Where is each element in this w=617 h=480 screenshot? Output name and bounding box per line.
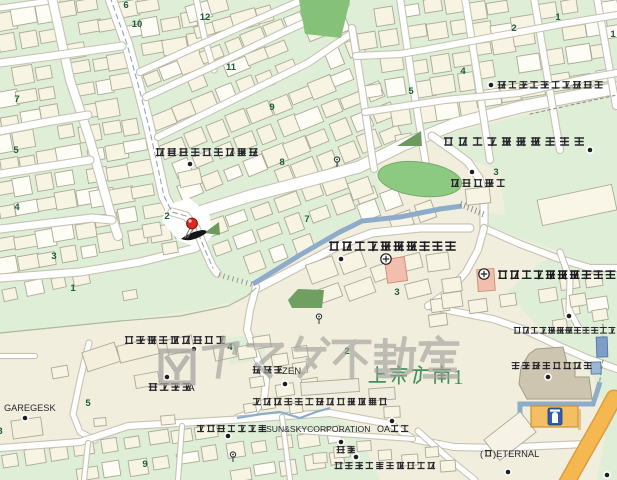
svg-text:GAREGESK: GAREGESK bbox=[4, 403, 56, 413]
svg-text:)ETERNAL: )ETERNAL bbox=[493, 448, 539, 459]
svg-text:4: 4 bbox=[14, 202, 20, 213]
svg-text:1: 1 bbox=[70, 283, 76, 294]
svg-text:3: 3 bbox=[0, 426, 3, 437]
svg-text:5: 5 bbox=[13, 145, 19, 156]
svg-text:3: 3 bbox=[51, 251, 56, 262]
svg-text:OA: OA bbox=[377, 424, 390, 434]
svg-text:4: 4 bbox=[460, 66, 466, 77]
svg-text:6: 6 bbox=[123, 0, 128, 11]
svg-text:1: 1 bbox=[610, 29, 616, 40]
svg-text:10: 10 bbox=[132, 19, 143, 30]
svg-text:7: 7 bbox=[14, 94, 19, 105]
svg-text:11: 11 bbox=[226, 62, 237, 73]
svg-text:3: 3 bbox=[493, 167, 498, 178]
svg-text:3: 3 bbox=[394, 287, 399, 298]
svg-text:9: 9 bbox=[142, 459, 147, 470]
svg-text:12: 12 bbox=[200, 12, 211, 23]
svg-text:5: 5 bbox=[408, 86, 414, 97]
svg-text:2: 2 bbox=[511, 23, 516, 34]
svg-text:SUN&SKYCORPORATION: SUN&SKYCORPORATION bbox=[266, 424, 370, 434]
svg-text:(: ( bbox=[480, 449, 483, 459]
svg-text:8: 8 bbox=[279, 157, 284, 168]
svg-text:2: 2 bbox=[164, 211, 169, 222]
svg-text:5: 5 bbox=[85, 398, 91, 409]
svg-text:9: 9 bbox=[269, 102, 274, 113]
svg-text:1: 1 bbox=[555, 12, 561, 23]
svg-text:7: 7 bbox=[304, 214, 309, 225]
